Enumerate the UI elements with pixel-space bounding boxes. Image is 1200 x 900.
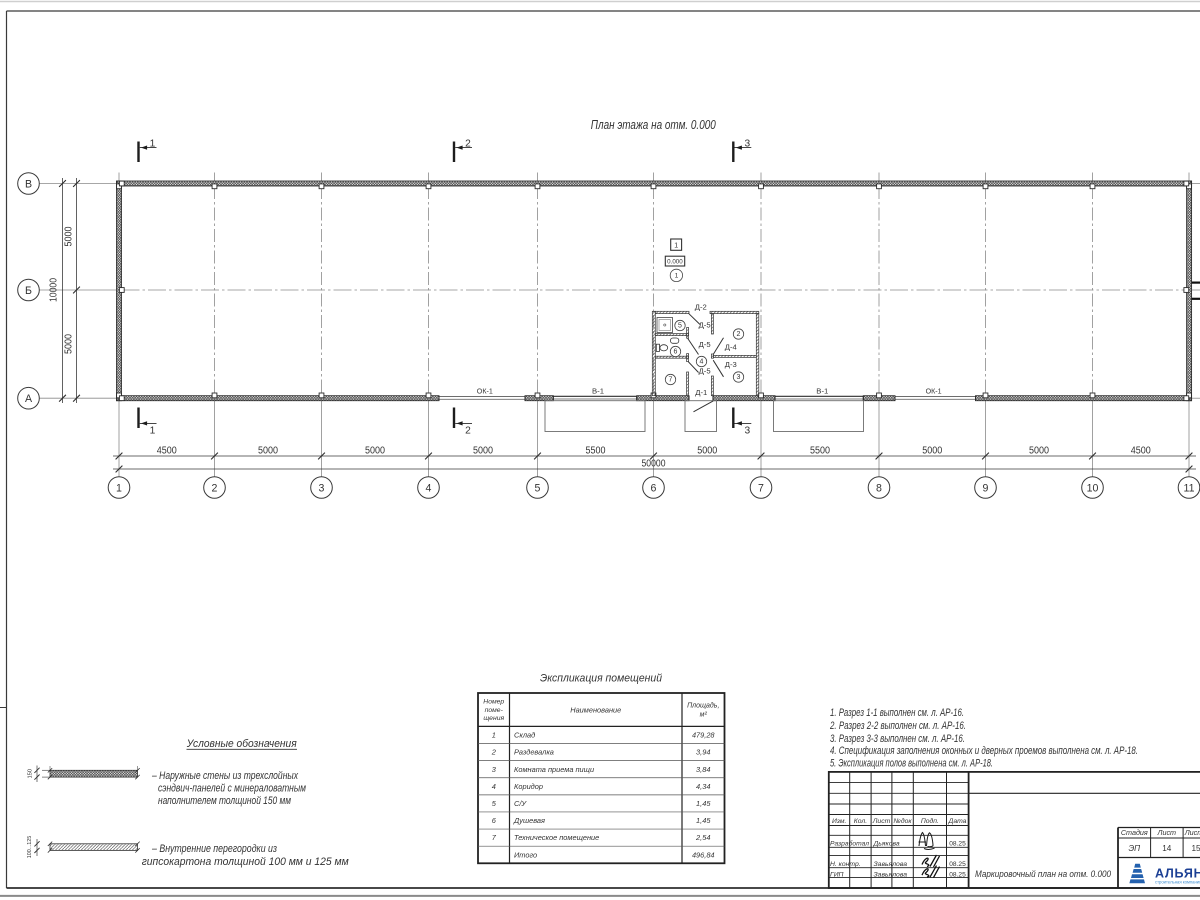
svg-text:Склад: Склад	[514, 731, 535, 740]
svg-text:Дьякова: Дьякова	[873, 840, 900, 847]
svg-text:А: А	[25, 393, 33, 405]
svg-text:С/У: С/У	[514, 799, 527, 808]
svg-text:Д-1: Д-1	[695, 388, 707, 397]
svg-text:5000: 5000	[1029, 445, 1050, 456]
svg-text:15: 15	[1191, 844, 1200, 853]
svg-text:5: 5	[535, 482, 541, 494]
svg-text:3: 3	[737, 374, 741, 381]
svg-text:3: 3	[319, 482, 325, 494]
svg-text:Завьялова: Завьялова	[874, 861, 908, 868]
svg-text:4: 4	[700, 359, 704, 366]
svg-text:5. Экспликация полов выполнена: 5. Экспликация полов выполнена см. л. АР…	[830, 758, 993, 770]
svg-text:5000: 5000	[258, 445, 279, 456]
svg-text:1: 1	[492, 731, 496, 740]
svg-text:100...125: 100...125	[27, 836, 33, 858]
svg-text:10: 10	[1087, 482, 1099, 494]
svg-text:4: 4	[426, 482, 432, 494]
svg-text:3: 3	[744, 426, 750, 437]
svg-text:5000: 5000	[64, 333, 75, 354]
svg-text:ГИП: ГИП	[830, 871, 844, 878]
svg-text:ОК-1: ОК-1	[477, 386, 493, 395]
svg-text:Стадия: Стадия	[1121, 828, 1148, 837]
svg-text:В: В	[25, 178, 32, 190]
svg-text:План этажа на отм. 0.000: План этажа на отм. 0.000	[591, 117, 717, 132]
svg-text:Наименование: Наименование	[570, 705, 621, 714]
svg-text:наполнителем толщиной 150 мм: наполнителем толщиной 150 мм	[158, 795, 291, 807]
svg-text:2,54: 2,54	[695, 833, 710, 842]
svg-text:50000: 50000	[642, 459, 666, 470]
svg-text:№док: №док	[894, 817, 913, 825]
svg-text:2: 2	[737, 331, 741, 338]
svg-text:сэндвич-панелей с минераловатн: сэндвич-панелей с минераловатным	[158, 782, 306, 794]
svg-text:Условные обозначения: Условные обозначения	[186, 738, 297, 750]
svg-text:3,94: 3,94	[696, 748, 710, 757]
svg-text:8: 8	[876, 482, 882, 494]
svg-text:5000: 5000	[697, 445, 718, 456]
svg-text:10000: 10000	[49, 278, 60, 302]
svg-text:Н. контр.: Н. контр.	[830, 861, 861, 868]
svg-text:Подп.: Подп.	[921, 817, 939, 825]
svg-text:Д-2: Д-2	[695, 302, 707, 311]
svg-text:08.25: 08.25	[949, 840, 966, 847]
svg-text:Д-5: Д-5	[699, 367, 711, 376]
svg-text:1: 1	[150, 139, 156, 150]
svg-text:479,28: 479,28	[692, 731, 715, 740]
svg-text:ОК-1: ОК-1	[926, 386, 942, 395]
svg-text:Раздевалка: Раздевалка	[514, 748, 554, 757]
svg-text:496,84: 496,84	[692, 850, 715, 859]
svg-text:Номер: Номер	[483, 699, 504, 706]
svg-text:Д-3: Д-3	[725, 360, 737, 369]
svg-text:4,34: 4,34	[696, 782, 710, 791]
svg-text:4: 4	[492, 782, 496, 791]
svg-text:Завьялова: Завьялова	[874, 871, 908, 878]
svg-text:5500: 5500	[810, 445, 831, 456]
svg-text:поме-: поме-	[485, 707, 504, 714]
svg-text:Д-5: Д-5	[699, 340, 711, 349]
svg-text:Д-5: Д-5	[699, 321, 711, 330]
svg-text:4500: 4500	[1131, 445, 1152, 456]
svg-text:1: 1	[116, 482, 122, 494]
svg-text:1. Разрез 1-1 выполнен см. л.: 1. Разрез 1-1 выполнен см. л. АР-16.	[830, 707, 964, 719]
svg-text:5500: 5500	[586, 445, 607, 456]
svg-text:Б: Б	[25, 285, 32, 297]
svg-text:150: 150	[28, 769, 34, 779]
svg-text:– Внутренние перегородки из: – Внутренние перегородки из	[151, 843, 277, 855]
svg-text:Д-4: Д-4	[725, 343, 737, 352]
svg-text:1: 1	[150, 426, 156, 437]
svg-text:Душевая: Душевая	[513, 816, 545, 825]
svg-text:ЭП: ЭП	[1128, 844, 1140, 853]
svg-text:Техническое помещение: Техническое помещение	[514, 833, 599, 842]
svg-text:2: 2	[465, 139, 471, 150]
svg-text:6: 6	[674, 349, 678, 356]
svg-text:– Наружные стены из трехслойны: – Наружные стены из трехслойных	[151, 770, 298, 782]
svg-text:гипсокартона толщиной 100 мм и: гипсокартона толщиной 100 мм и 125 мм	[142, 856, 349, 868]
svg-text:7: 7	[669, 377, 673, 384]
svg-text:5: 5	[678, 323, 682, 330]
svg-text:Изм.: Изм.	[832, 818, 847, 825]
svg-text:Экспликация помещений: Экспликация помещений	[540, 672, 662, 684]
svg-text:6: 6	[651, 482, 657, 494]
svg-text:1,45: 1,45	[696, 816, 711, 825]
svg-text:08.25: 08.25	[949, 871, 966, 878]
svg-text:3. Разрез 3-3 выполнен см. л.: 3. Разрез 3-3 выполнен см. л. АР-16.	[830, 733, 965, 745]
svg-text:В-1: В-1	[592, 386, 604, 395]
svg-text:Итого: Итого	[514, 850, 537, 859]
svg-text:2: 2	[491, 748, 496, 757]
svg-text:1,45: 1,45	[696, 799, 711, 808]
svg-text:Маркировочный план на отм. 0.0: Маркировочный план на отм. 0.000	[975, 869, 1112, 880]
svg-text:2: 2	[465, 426, 471, 437]
svg-text:11: 11	[1184, 482, 1195, 494]
svg-text:5000: 5000	[473, 445, 494, 456]
svg-text:4. Спецификация заполнения око: 4. Спецификация заполнения оконных и две…	[830, 745, 1138, 757]
svg-text:0.000: 0.000	[667, 259, 683, 266]
svg-text:3,84: 3,84	[696, 765, 710, 774]
svg-text:4500: 4500	[157, 445, 178, 456]
svg-text:5000: 5000	[64, 226, 75, 247]
svg-text:щения: щения	[483, 715, 504, 722]
svg-text:Дата: Дата	[948, 818, 967, 825]
svg-text:В-1: В-1	[816, 386, 828, 395]
svg-text:Комната приема пищи: Комната приема пищи	[514, 765, 594, 774]
svg-text:2. Разрез 2-2 выполнен см. л.: 2. Разрез 2-2 выполнен см. л. АР-16.	[829, 720, 966, 732]
svg-text:Лист: Лист	[1157, 828, 1177, 837]
svg-text:Лист: Лист	[1184, 828, 1200, 837]
svg-text:Лист: Лист	[872, 818, 891, 825]
svg-text:Коридор: Коридор	[514, 782, 543, 791]
svg-text:9: 9	[983, 482, 989, 494]
svg-text:Кол.: Кол.	[854, 818, 867, 825]
svg-text:1: 1	[674, 242, 678, 249]
svg-text:5000: 5000	[922, 445, 943, 456]
svg-text:08.25: 08.25	[949, 861, 966, 868]
svg-text:2: 2	[212, 482, 218, 494]
svg-text:3: 3	[744, 139, 750, 150]
svg-text:7: 7	[758, 482, 764, 494]
svg-text:1: 1	[675, 273, 679, 280]
svg-text:АЛЬЯНС: АЛЬЯНС	[1155, 867, 1200, 881]
svg-text:м²: м²	[700, 712, 708, 719]
svg-text:Разработал: Разработал	[830, 839, 869, 847]
svg-text:Площадь,: Площадь,	[687, 702, 719, 710]
svg-text:14: 14	[1162, 844, 1172, 853]
svg-text:строительная компания: строительная компания	[1155, 880, 1200, 885]
svg-text:5000: 5000	[365, 445, 386, 456]
